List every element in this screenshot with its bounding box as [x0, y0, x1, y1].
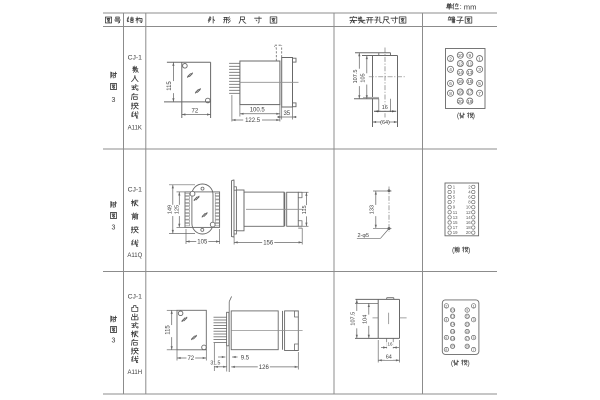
svg-text:1: 1 [473, 304, 475, 308]
svg-text:104: 104 [363, 315, 369, 324]
svg-text:2: 2 [445, 304, 447, 308]
svg-text:64: 64 [386, 354, 392, 360]
svg-text:17: 17 [467, 90, 473, 95]
svg-text:10: 10 [451, 309, 455, 313]
svg-text:105: 105 [361, 73, 367, 82]
svg-text:107.5: 107.5 [353, 70, 359, 84]
svg-text:12: 12 [458, 61, 464, 66]
svg-text:19: 19 [467, 99, 473, 104]
svg-text:mm: mm [464, 2, 477, 11]
svg-text:1: 1 [478, 56, 481, 61]
svg-text:16: 16 [382, 105, 388, 111]
svg-text:15: 15 [465, 330, 469, 334]
svg-text:3: 3 [112, 338, 116, 345]
svg-text:4: 4 [445, 318, 447, 322]
svg-text:115: 115 [302, 205, 308, 214]
svg-text:): ) [467, 360, 469, 367]
svg-text:72: 72 [187, 356, 194, 362]
svg-text:100.5: 100.5 [250, 107, 266, 113]
svg-text:6: 6 [449, 81, 452, 86]
svg-text:17: 17 [465, 337, 469, 341]
svg-text:16: 16 [458, 79, 464, 84]
svg-text:10: 10 [458, 53, 464, 58]
svg-text:13: 13 [465, 323, 469, 327]
svg-text:15: 15 [467, 79, 473, 84]
svg-text:107.5: 107.5 [351, 312, 357, 326]
svg-text:11: 11 [467, 61, 472, 66]
svg-text:19: 19 [465, 345, 469, 349]
svg-text:18: 18 [458, 90, 464, 95]
svg-text:72: 72 [192, 109, 199, 115]
svg-text:A11Q: A11Q [127, 253, 142, 259]
svg-text:20: 20 [466, 230, 471, 235]
svg-text:5: 5 [478, 81, 481, 86]
svg-text:115: 115 [167, 81, 173, 91]
svg-text:CJ-1: CJ-1 [128, 294, 143, 301]
svg-text:CJ-1: CJ-1 [128, 55, 143, 62]
svg-text:11: 11 [465, 315, 469, 319]
svg-text:A11K: A11K [128, 126, 142, 132]
svg-text:115: 115 [166, 325, 172, 335]
svg-text:125: 125 [175, 205, 181, 214]
svg-text:9.5: 9.5 [241, 355, 250, 361]
svg-text:19: 19 [453, 230, 458, 235]
svg-text:3: 3 [112, 225, 116, 232]
svg-text:5: 5 [473, 336, 475, 340]
svg-text:14: 14 [451, 323, 455, 327]
svg-text:8: 8 [449, 91, 452, 96]
svg-text:3: 3 [473, 318, 475, 322]
svg-text:14: 14 [458, 70, 464, 75]
svg-text:4: 4 [449, 67, 452, 72]
svg-text:A11H: A11H [128, 370, 143, 376]
svg-text:31.5: 31.5 [210, 360, 220, 366]
svg-text:16: 16 [387, 342, 393, 347]
svg-text:16: 16 [451, 330, 455, 334]
svg-text:149: 149 [168, 205, 174, 214]
svg-text:): ) [468, 247, 470, 254]
svg-text:18: 18 [451, 337, 455, 341]
svg-text:20: 20 [458, 99, 464, 104]
svg-text:3: 3 [478, 67, 481, 72]
svg-text:133: 133 [370, 205, 376, 214]
svg-text:13: 13 [467, 70, 473, 75]
svg-text:9: 9 [468, 53, 471, 58]
svg-text:CJ-1: CJ-1 [128, 187, 143, 194]
svg-text:8: 8 [445, 348, 447, 352]
svg-text:12: 12 [451, 315, 455, 319]
svg-text::: : [460, 4, 462, 11]
svg-text:2: 2 [449, 56, 452, 61]
svg-text:20: 20 [451, 345, 455, 349]
svg-text:7: 7 [473, 348, 475, 352]
svg-text:156: 156 [263, 241, 274, 247]
svg-text:3: 3 [112, 97, 116, 104]
svg-text:126: 126 [259, 365, 270, 371]
svg-text:2-φ5: 2-φ5 [358, 233, 370, 239]
svg-text:9: 9 [466, 309, 468, 313]
svg-text:122.5: 122.5 [245, 118, 261, 124]
svg-text:35: 35 [283, 111, 290, 117]
svg-text:6: 6 [445, 336, 447, 340]
svg-text:105: 105 [197, 240, 208, 246]
svg-text:7: 7 [478, 91, 481, 96]
svg-text:(64): (64) [380, 120, 390, 126]
